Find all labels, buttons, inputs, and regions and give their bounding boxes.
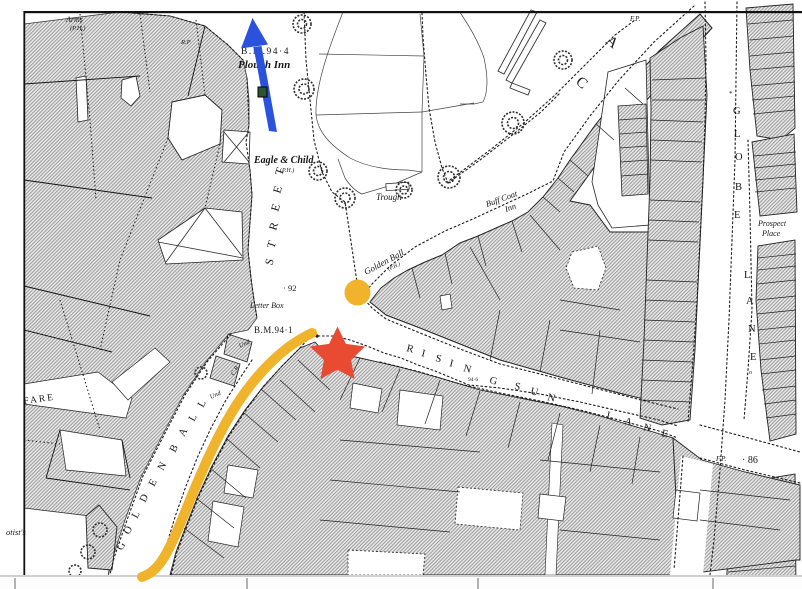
svg-text:94·6: 94·6 bbox=[468, 377, 478, 383]
svg-text:F.P.: F.P. bbox=[629, 15, 640, 23]
svg-text:Place: Place bbox=[761, 229, 781, 238]
svg-text:R.P: R.P bbox=[180, 39, 191, 46]
svg-text:B: B bbox=[735, 182, 742, 193]
svg-text:A: A bbox=[746, 296, 754, 307]
svg-text:O: O bbox=[735, 152, 743, 163]
svg-text:Prospect: Prospect bbox=[757, 219, 787, 228]
svg-text:E: E bbox=[750, 352, 756, 363]
svg-text:· 92: · 92 bbox=[283, 283, 296, 293]
svg-text:E: E bbox=[734, 210, 740, 221]
svg-text:otist's: otist's bbox=[6, 527, 26, 537]
svg-text:· 86: · 86 bbox=[742, 455, 758, 466]
svg-text:*: * bbox=[729, 90, 733, 98]
svg-text:o: o bbox=[749, 370, 752, 376]
svg-text:L: L bbox=[734, 129, 740, 140]
svg-text:G: G bbox=[733, 106, 741, 117]
svg-text:(P.H.): (P.H.) bbox=[70, 25, 85, 32]
svg-text:Eagle & Child: Eagle & Child bbox=[253, 155, 314, 166]
svg-text:B.M.94·4: B.M.94·4 bbox=[241, 47, 290, 57]
svg-text:F.P.: F.P. bbox=[715, 455, 726, 463]
svg-text:Letter Box: Letter Box bbox=[249, 301, 284, 310]
svg-text:Arms: Arms bbox=[65, 15, 83, 24]
svg-text:N: N bbox=[748, 324, 756, 335]
svg-text:Trough: Trough bbox=[376, 192, 402, 202]
svg-text:B.M.94·1: B.M.94·1 bbox=[254, 325, 293, 335]
svg-text:L: L bbox=[744, 270, 750, 281]
